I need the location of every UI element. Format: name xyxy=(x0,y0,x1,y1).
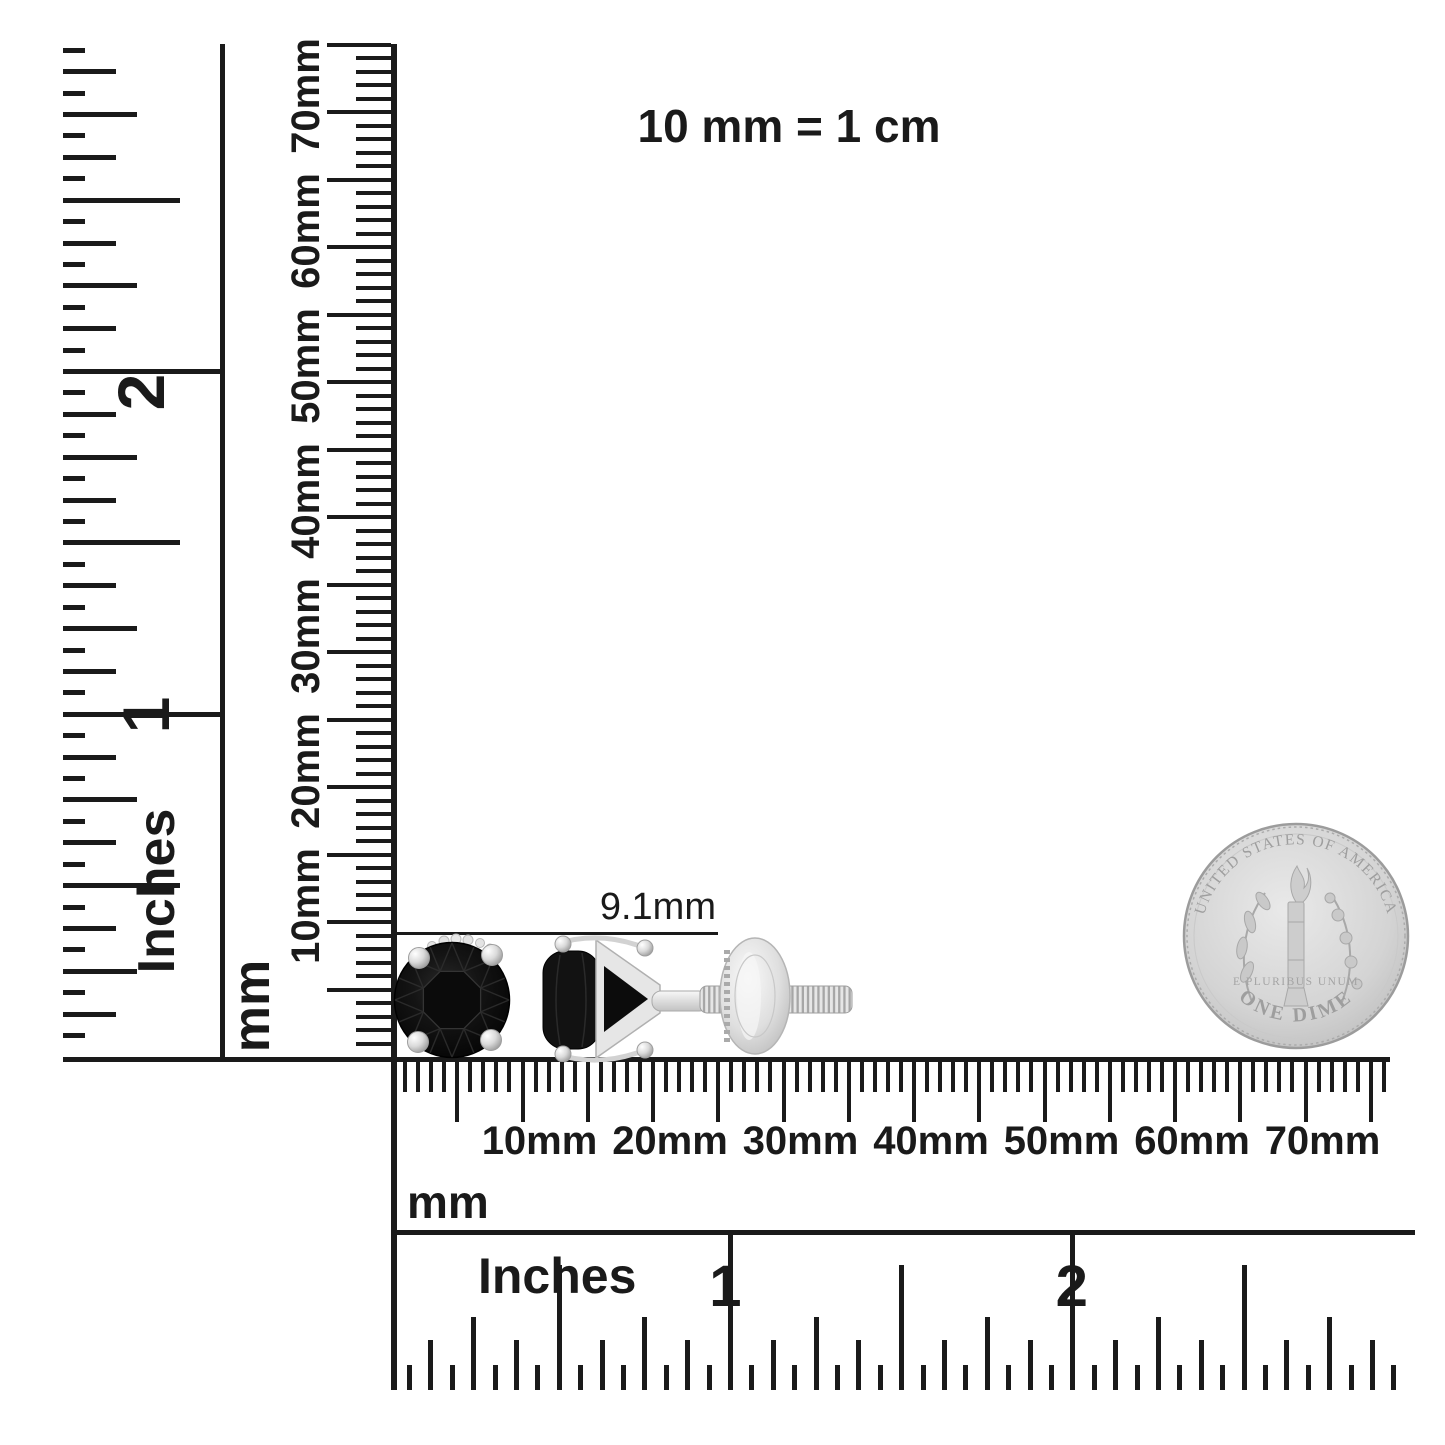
ruler-label: 2 xyxy=(108,373,174,410)
tick-mark xyxy=(742,1062,746,1092)
tick-mark xyxy=(63,176,85,181)
tick-mark xyxy=(1147,1062,1151,1092)
tick-mark xyxy=(327,853,391,857)
tick-mark xyxy=(356,1015,391,1019)
ruler-label: 60mm xyxy=(1134,1121,1250,1161)
stud-earring-side xyxy=(543,936,852,1062)
tick-mark xyxy=(1135,1365,1140,1390)
tick-mark xyxy=(356,812,391,816)
tick-mark xyxy=(356,326,391,330)
tick-mark xyxy=(1304,1062,1308,1122)
tick-mark xyxy=(1330,1062,1334,1092)
tick-mark xyxy=(1003,1062,1007,1092)
tick-mark xyxy=(356,637,391,641)
ruler-label: 40mm xyxy=(873,1121,989,1161)
tick-mark xyxy=(586,1062,590,1122)
tick-mark xyxy=(63,198,180,203)
tick-mark xyxy=(1284,1340,1289,1390)
tick-mark xyxy=(703,1062,707,1092)
tick-mark xyxy=(1029,1062,1033,1092)
tick-mark xyxy=(403,1062,407,1092)
tick-mark xyxy=(356,610,391,614)
tick-mark xyxy=(1370,1340,1375,1390)
tick-mark xyxy=(63,498,116,503)
tick-mark xyxy=(1199,1340,1204,1390)
ruler-label: 70mm xyxy=(286,38,326,154)
tick-mark xyxy=(1356,1062,1360,1092)
tick-mark xyxy=(1177,1365,1182,1390)
tick-mark xyxy=(471,1317,476,1390)
tick-mark xyxy=(599,1062,603,1092)
tick-mark xyxy=(63,969,137,974)
tick-mark xyxy=(356,866,391,870)
tick-mark xyxy=(356,353,391,357)
tick-mark xyxy=(514,1340,519,1390)
tick-mark xyxy=(356,218,391,222)
tick-mark xyxy=(63,926,116,931)
tick-mark xyxy=(356,677,391,681)
stone-table-facet xyxy=(423,971,480,1028)
tick-mark xyxy=(356,934,391,938)
tick-mark xyxy=(621,1365,626,1390)
tick-mark xyxy=(63,326,116,331)
tick-mark xyxy=(707,1365,712,1390)
tick-mark xyxy=(356,502,391,506)
tick-mark xyxy=(951,1062,955,1092)
tick-mark xyxy=(356,286,391,290)
tick-mark xyxy=(808,1062,812,1092)
tick-mark xyxy=(716,1062,720,1122)
ruler-label: 70mm xyxy=(1265,1121,1381,1161)
tick-mark xyxy=(600,1340,605,1390)
tick-mark xyxy=(63,69,116,74)
tick-mark xyxy=(356,947,391,951)
ruler-label: 1 xyxy=(709,1258,741,1316)
tick-mark xyxy=(560,1062,564,1092)
tick-mark xyxy=(327,178,391,182)
tick-mark xyxy=(912,1062,916,1122)
tick-mark xyxy=(455,1062,459,1122)
tick-mark xyxy=(1199,1062,1203,1092)
tick-mark xyxy=(1134,1062,1138,1092)
tick-mark xyxy=(664,1062,668,1092)
tick-mark xyxy=(356,124,391,128)
tick-mark xyxy=(1220,1365,1225,1390)
tick-mark xyxy=(1160,1062,1164,1092)
ruler-label: 50mm xyxy=(286,308,326,424)
tick-mark xyxy=(990,1062,994,1092)
tick-mark xyxy=(356,691,391,695)
tick-mark xyxy=(642,1317,647,1390)
tick-mark xyxy=(535,1365,540,1390)
tick-mark xyxy=(63,540,180,545)
tick-mark xyxy=(356,826,391,830)
tick-mark xyxy=(356,1028,391,1032)
tick-mark xyxy=(356,623,391,627)
tick-mark xyxy=(327,785,391,789)
tick-mark xyxy=(63,797,137,802)
tick-mark xyxy=(63,348,85,353)
tick-mark xyxy=(327,245,391,249)
tick-mark xyxy=(63,669,116,674)
tick-mark xyxy=(356,799,391,803)
tick-mark xyxy=(1225,1062,1229,1092)
tick-mark xyxy=(792,1365,797,1390)
tick-mark xyxy=(356,151,391,155)
tick-mark xyxy=(356,70,391,74)
tick-mark xyxy=(63,241,116,246)
tick-mark xyxy=(63,476,85,481)
tick-mark xyxy=(356,191,391,195)
tick-mark xyxy=(63,947,85,952)
tick-mark xyxy=(63,390,85,395)
tick-mark xyxy=(327,448,391,452)
tick-mark xyxy=(899,1265,904,1390)
tick-mark xyxy=(327,988,391,992)
tick-mark xyxy=(63,862,85,867)
tick-mark xyxy=(356,556,391,560)
tick-mark xyxy=(63,690,85,695)
tick-mark xyxy=(847,1062,851,1122)
tick-mark xyxy=(356,272,391,276)
tick-mark xyxy=(327,313,391,317)
tick-mark xyxy=(356,880,391,884)
screwback-disc-highlight xyxy=(737,952,761,1040)
tick-mark xyxy=(356,394,391,398)
tick-mark xyxy=(468,1062,472,1092)
tick-mark xyxy=(356,893,391,897)
ruler-label: 30mm xyxy=(743,1121,859,1161)
tick-mark xyxy=(429,1062,433,1092)
tick-mark xyxy=(1069,1062,1073,1092)
tick-mark xyxy=(795,1062,799,1092)
tick-mark xyxy=(856,1340,861,1390)
tick-mark xyxy=(327,650,391,654)
tick-mark xyxy=(964,1062,968,1092)
tick-mark xyxy=(1306,1365,1311,1390)
tick-mark xyxy=(356,83,391,87)
tick-mark xyxy=(356,907,391,911)
tick-mark xyxy=(942,1340,947,1390)
tick-mark xyxy=(356,542,391,546)
tick-mark xyxy=(1391,1365,1396,1390)
tick-mark xyxy=(1082,1062,1086,1092)
tick-mark xyxy=(651,1062,655,1122)
tick-mark xyxy=(1317,1062,1321,1092)
tick-mark xyxy=(327,920,391,924)
tick-mark xyxy=(63,883,180,888)
tick-mark xyxy=(416,1062,420,1092)
tick-mark xyxy=(356,97,391,101)
tick-mark xyxy=(356,704,391,708)
tick-mark xyxy=(63,519,85,524)
tick-mark xyxy=(1121,1062,1125,1092)
tick-mark xyxy=(442,1062,446,1092)
stud-earring-front xyxy=(395,934,510,1058)
tick-mark xyxy=(1212,1062,1216,1092)
tick-mark xyxy=(729,1062,733,1092)
tick-mark xyxy=(63,840,116,845)
tick-mark xyxy=(356,56,391,60)
tick-mark xyxy=(1113,1340,1118,1390)
tick-mark xyxy=(1238,1062,1242,1122)
tick-mark xyxy=(356,529,391,533)
tick-mark xyxy=(1092,1365,1097,1390)
tick-mark xyxy=(356,461,391,465)
tick-mark xyxy=(327,583,391,587)
tick-mark xyxy=(625,1062,629,1092)
tick-mark xyxy=(63,905,85,910)
tick-mark xyxy=(356,259,391,263)
tick-mark xyxy=(356,961,391,965)
product-size-diagram: Inches mm mm Inches 10 mm = 1 cm 9.1mm xyxy=(0,0,1445,1445)
tick-mark xyxy=(547,1062,551,1092)
tick-mark xyxy=(356,475,391,479)
tick-mark xyxy=(63,112,137,117)
tick-mark xyxy=(834,1062,838,1092)
tick-mark xyxy=(1056,1062,1060,1092)
tick-mark xyxy=(557,1265,562,1390)
tick-mark xyxy=(356,745,391,749)
tick-mark xyxy=(638,1062,642,1092)
tick-mark xyxy=(921,1365,926,1390)
tick-mark xyxy=(925,1062,929,1092)
tick-mark xyxy=(835,1365,840,1390)
tick-mark xyxy=(63,155,116,160)
tick-mark xyxy=(63,48,85,53)
ruler-label: 10mm xyxy=(482,1121,598,1161)
tick-mark xyxy=(327,380,391,384)
tick-mark xyxy=(1263,1365,1268,1390)
tick-mark xyxy=(1382,1062,1386,1092)
tick-mark xyxy=(782,1062,786,1122)
tick-mark xyxy=(356,1042,391,1046)
tick-mark xyxy=(768,1062,772,1092)
tick-mark xyxy=(63,1033,85,1038)
tick-mark xyxy=(63,433,85,438)
tick-mark xyxy=(860,1062,864,1092)
tick-mark xyxy=(1264,1062,1268,1092)
tick-mark xyxy=(1006,1365,1011,1390)
tick-mark xyxy=(1016,1062,1020,1092)
tick-mark xyxy=(481,1062,485,1092)
tick-mark xyxy=(534,1062,538,1092)
tick-mark xyxy=(407,1365,412,1390)
tick-mark xyxy=(356,137,391,141)
tick-mark xyxy=(63,262,85,267)
ruler-label: 40mm xyxy=(286,443,326,559)
tick-mark xyxy=(356,731,391,735)
tick-mark xyxy=(963,1365,968,1390)
tick-mark xyxy=(1173,1062,1177,1122)
tick-mark xyxy=(356,664,391,668)
tick-mark xyxy=(1277,1062,1281,1092)
tick-mark xyxy=(63,455,137,460)
dime-coin: UNITED STATES OF AMERICA E PLURIBUS UNUM… xyxy=(1184,824,1408,1048)
tick-mark xyxy=(356,569,391,573)
tick-mark xyxy=(356,839,391,843)
tick-mark xyxy=(1049,1365,1054,1390)
tick-mark xyxy=(493,1365,498,1390)
product-artwork: UNITED STATES OF AMERICA E PLURIBUS UNUM… xyxy=(0,0,1445,1445)
tick-mark xyxy=(749,1365,754,1390)
tick-mark xyxy=(356,232,391,236)
ruler-label: 60mm xyxy=(286,173,326,289)
tick-mark xyxy=(1095,1062,1099,1092)
tick-mark xyxy=(356,299,391,303)
tick-mark xyxy=(327,43,391,47)
tick-mark xyxy=(63,412,116,417)
tick-mark xyxy=(356,367,391,371)
tick-mark xyxy=(878,1365,883,1390)
tick-mark xyxy=(612,1062,616,1092)
tick-mark xyxy=(664,1365,669,1390)
tick-mark xyxy=(573,1062,577,1092)
tick-mark xyxy=(356,596,391,600)
tick-mark xyxy=(356,772,391,776)
tick-mark xyxy=(356,340,391,344)
tick-mark xyxy=(899,1062,903,1092)
tick-mark xyxy=(771,1340,776,1390)
tick-mark xyxy=(1043,1062,1047,1122)
tick-mark xyxy=(63,219,85,224)
tick-mark xyxy=(1327,1317,1332,1390)
tick-mark xyxy=(1156,1317,1161,1390)
tick-mark xyxy=(938,1062,942,1092)
tick-mark xyxy=(63,776,85,781)
ruler-label: 20mm xyxy=(612,1121,728,1161)
tick-mark xyxy=(356,164,391,168)
tick-mark xyxy=(327,718,391,722)
tick-mark xyxy=(356,488,391,492)
tick-mark xyxy=(1251,1062,1255,1092)
tick-mark xyxy=(755,1062,759,1092)
tick-mark xyxy=(327,515,391,519)
tick-mark xyxy=(873,1062,877,1092)
coin-motto-text: E PLURIBUS UNUM xyxy=(1233,976,1359,988)
tick-mark xyxy=(63,605,85,610)
tick-mark xyxy=(521,1062,525,1122)
tick-mark xyxy=(685,1340,690,1390)
ruler-label: 20mm xyxy=(286,713,326,829)
stone-side-profile xyxy=(543,951,600,1049)
tick-mark xyxy=(63,562,85,567)
tick-mark xyxy=(356,205,391,209)
ruler-label: 2 xyxy=(1056,1258,1088,1316)
tick-mark xyxy=(450,1365,455,1390)
tick-mark xyxy=(985,1317,990,1390)
tick-mark xyxy=(356,421,391,425)
tick-mark xyxy=(1349,1365,1354,1390)
tick-mark xyxy=(1369,1062,1373,1122)
ruler-label: 10mm xyxy=(286,848,326,964)
tick-mark xyxy=(63,1012,116,1017)
tick-mark xyxy=(63,91,85,96)
tick-mark xyxy=(886,1062,890,1092)
tick-mark xyxy=(63,583,116,588)
tick-mark xyxy=(356,974,391,978)
tick-mark xyxy=(578,1365,583,1390)
tick-mark xyxy=(1242,1265,1247,1390)
tick-mark xyxy=(327,110,391,114)
tick-mark xyxy=(1108,1062,1112,1122)
ruler-label: 1 xyxy=(113,697,179,734)
tick-mark xyxy=(1186,1062,1190,1092)
tick-mark xyxy=(821,1062,825,1092)
ruler-label: 50mm xyxy=(1004,1121,1120,1161)
tick-mark xyxy=(356,758,391,762)
tick-mark xyxy=(63,283,137,288)
tick-mark xyxy=(63,733,85,738)
tick-mark xyxy=(63,755,116,760)
tick-mark xyxy=(63,626,137,631)
tick-mark xyxy=(356,1001,391,1005)
tick-mark xyxy=(63,990,85,995)
tick-mark xyxy=(814,1317,819,1390)
tick-mark xyxy=(1028,1340,1033,1390)
tick-mark xyxy=(494,1062,498,1092)
tick-mark xyxy=(428,1340,433,1390)
tick-mark xyxy=(356,407,391,411)
ruler-label: 30mm xyxy=(286,578,326,694)
tick-mark xyxy=(1343,1062,1347,1092)
tick-mark xyxy=(677,1062,681,1092)
tick-mark xyxy=(63,819,85,824)
tick-mark xyxy=(690,1062,694,1092)
tick-mark xyxy=(977,1062,981,1122)
tick-mark xyxy=(1290,1062,1294,1092)
tick-mark xyxy=(63,305,85,310)
tick-mark xyxy=(63,133,85,138)
tick-mark xyxy=(356,434,391,438)
tick-mark xyxy=(507,1062,511,1092)
tick-mark xyxy=(63,648,85,653)
